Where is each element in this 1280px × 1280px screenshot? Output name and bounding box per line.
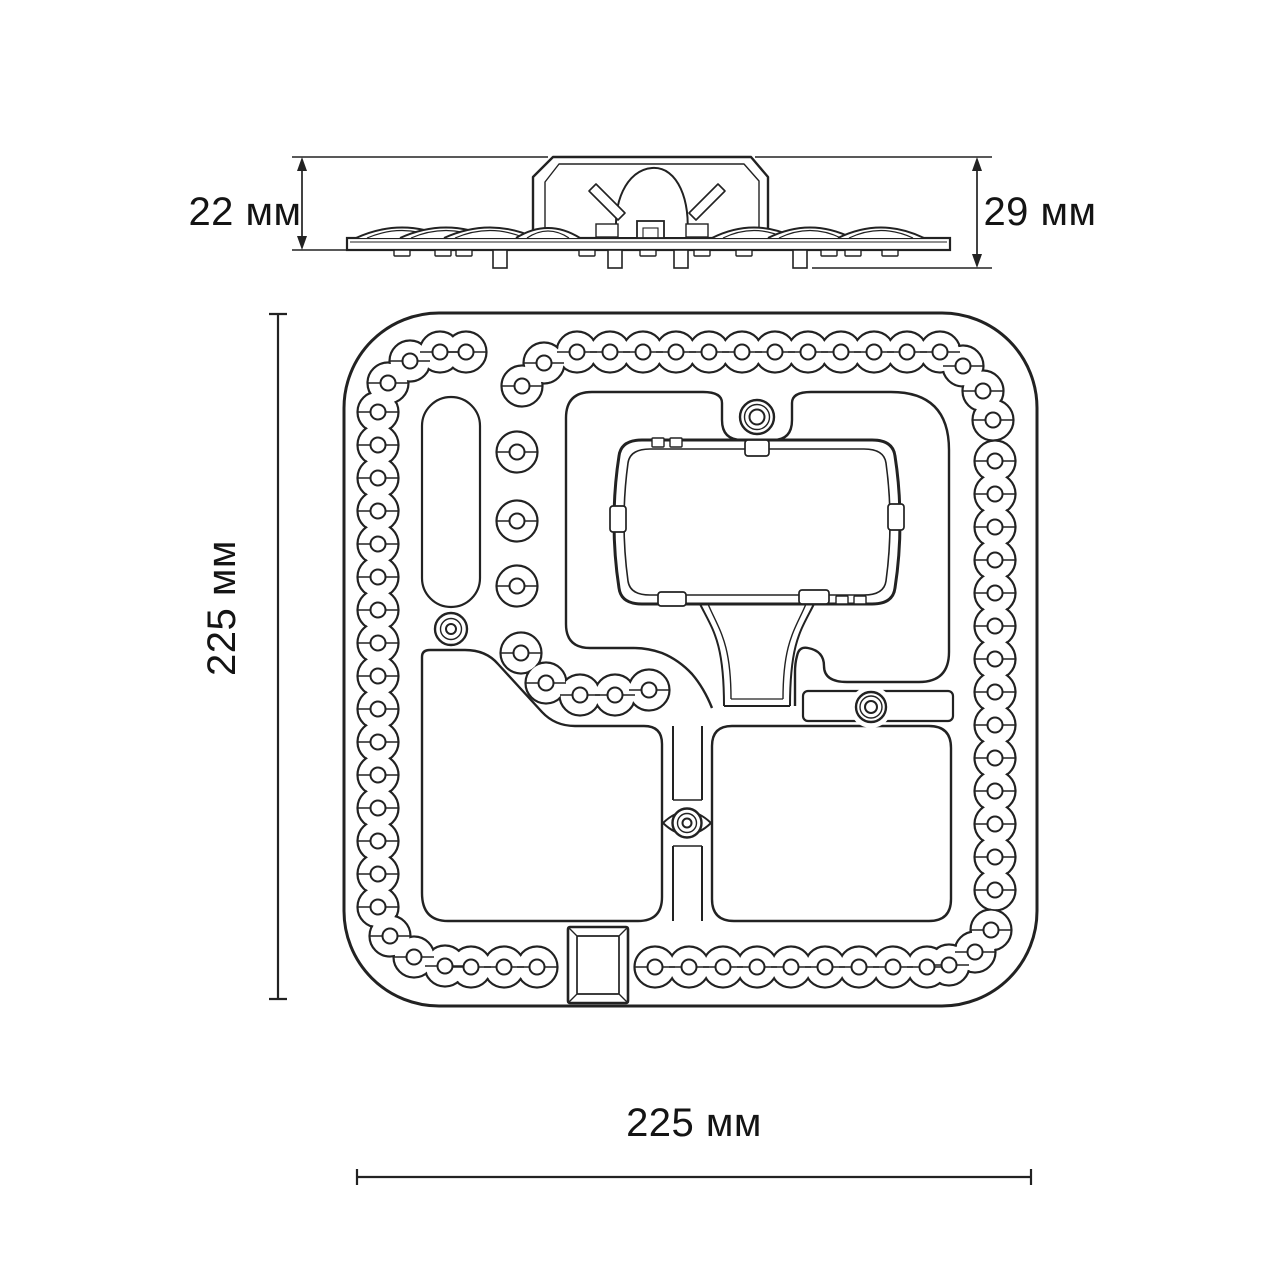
screw-left [435, 613, 467, 645]
led-lenses [358, 332, 1016, 988]
top-view-dimension-height [269, 314, 287, 999]
screw-right [856, 692, 886, 722]
oblong-slot [422, 397, 480, 607]
top-view-dimension-width [357, 1169, 1031, 1185]
dimension-label-side-225mm: 225 мм [199, 508, 245, 708]
dimension-label-height-22mm: 22 мм [160, 189, 330, 235]
screw-bottom [673, 809, 702, 838]
top-view [344, 313, 1037, 1006]
screw-top-center [740, 400, 774, 434]
driver-connector-frame [610, 438, 904, 606]
side-view [292, 157, 992, 268]
wire-entry-box [568, 927, 628, 1003]
dimension-label-height-29mm: 29 мм [955, 189, 1125, 235]
technical-drawing-page: 22 мм 29 мм 225 мм 225 мм [0, 0, 1280, 1280]
dimension-label-width-225mm: 225 мм [594, 1100, 794, 1146]
